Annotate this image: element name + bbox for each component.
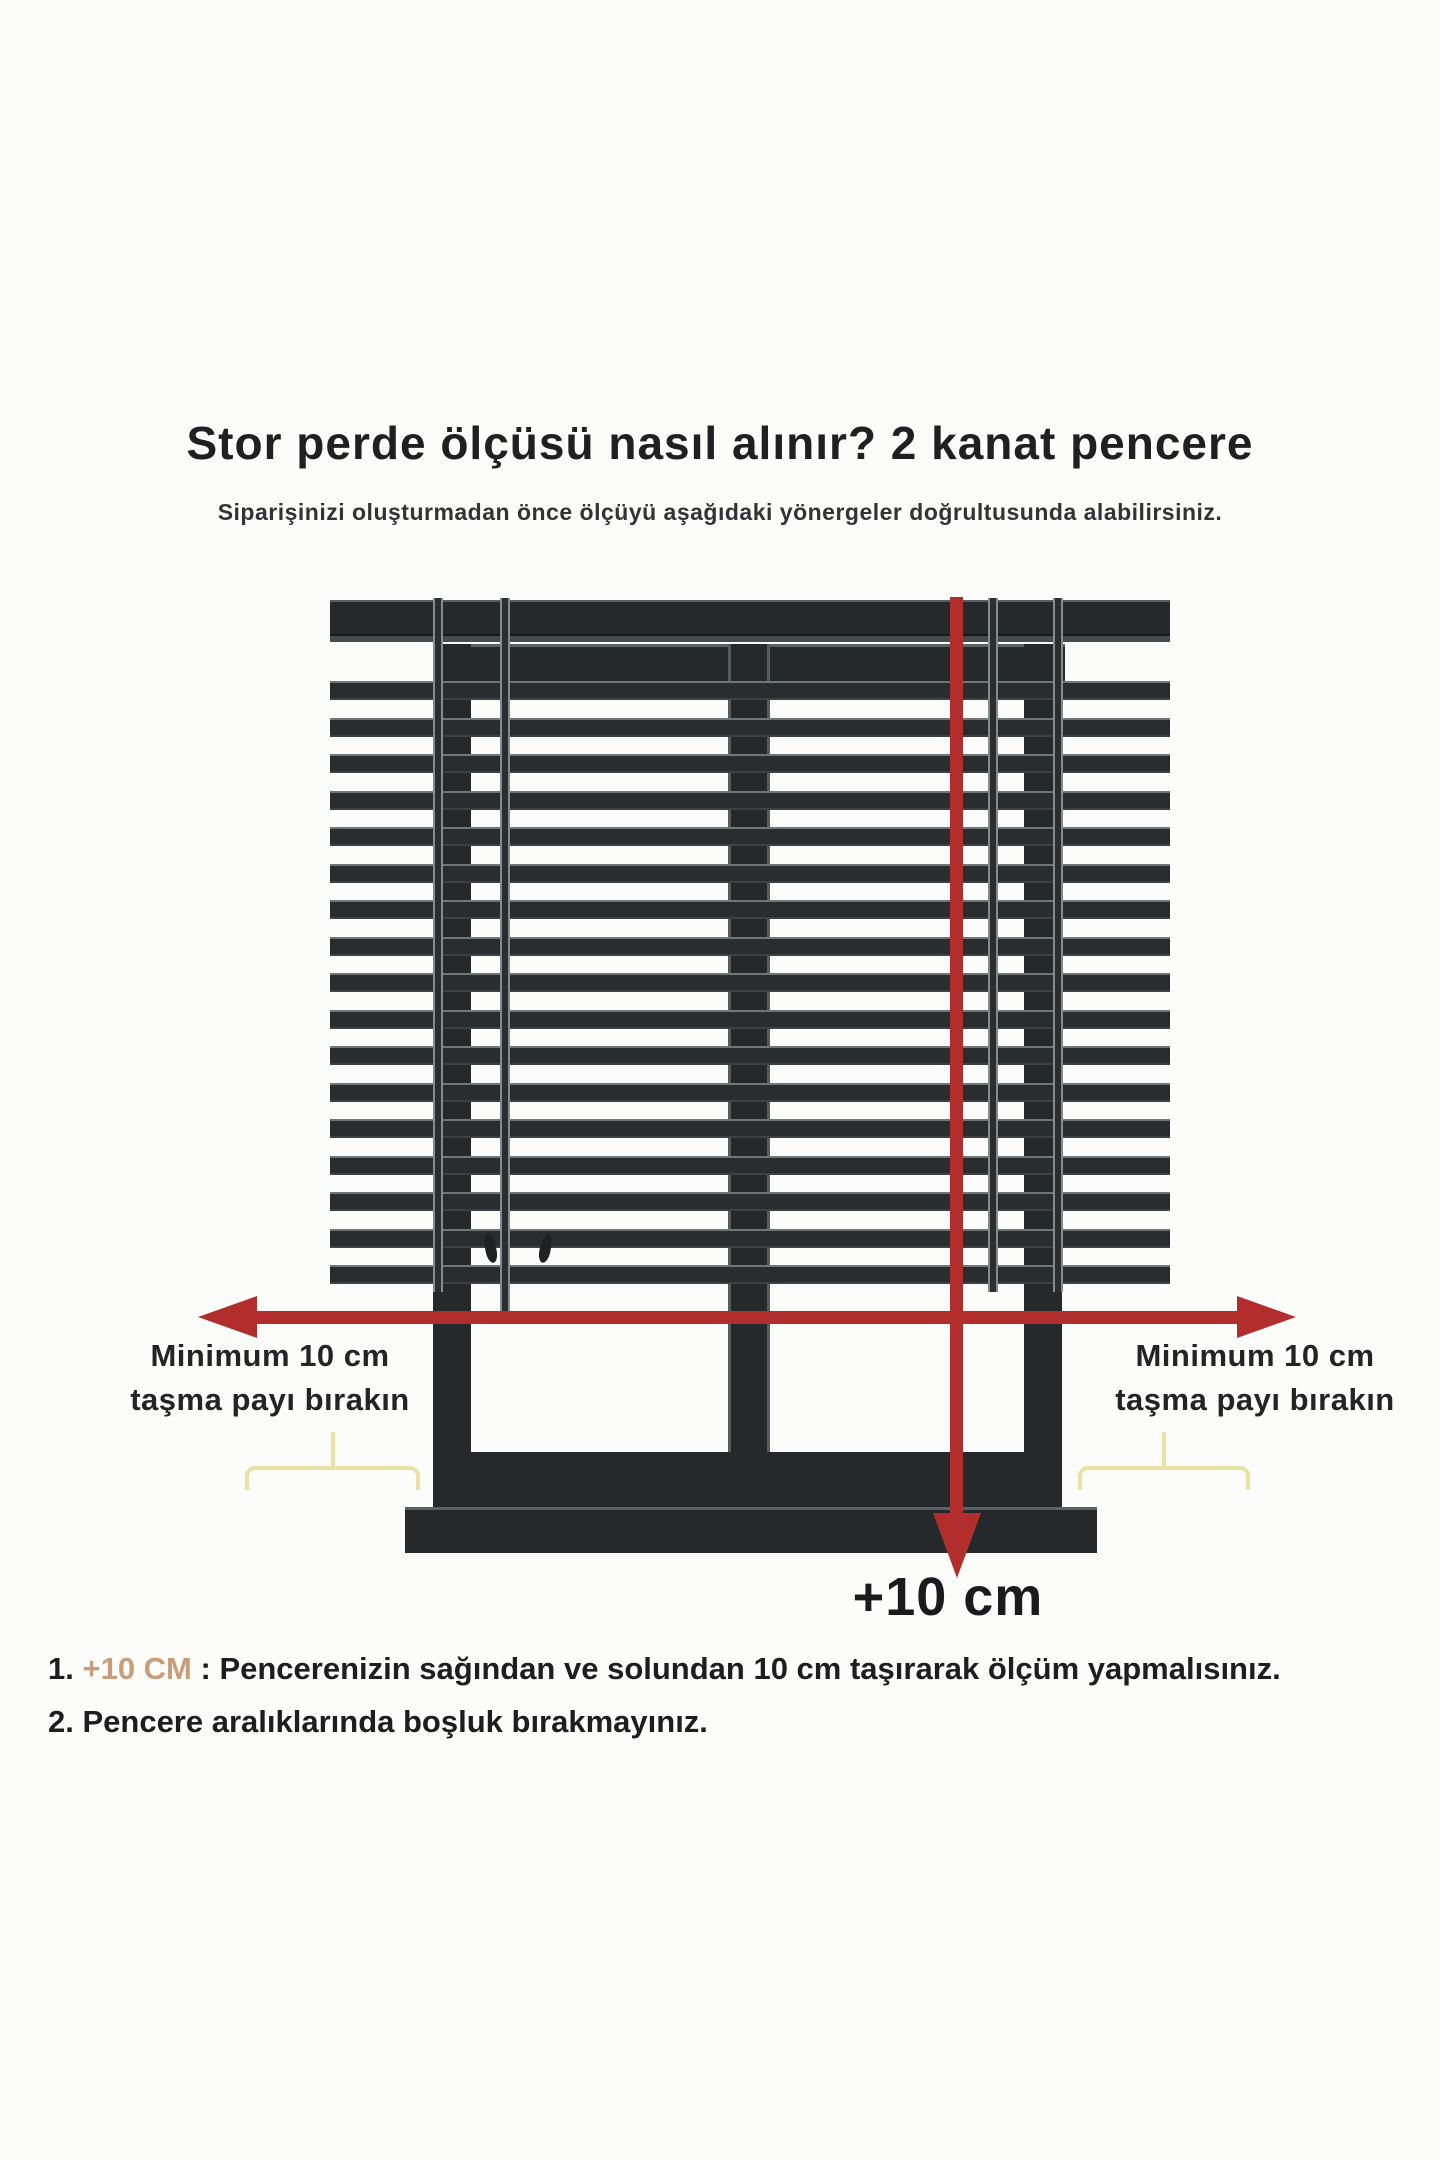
- blind-slat: [330, 1046, 1170, 1065]
- blind-slat: [330, 973, 1170, 992]
- left-overhang-label-line2: taşma payı bırakın: [80, 1378, 460, 1422]
- blind-slat: [330, 1010, 1170, 1029]
- window-bottom-rail: [433, 1452, 1062, 1507]
- width-arrow-right-head-icon: [1237, 1296, 1296, 1338]
- blind-cord: [433, 598, 443, 1292]
- blind-slat: [330, 681, 1170, 700]
- right-overhang-label: Minimum 10 cm taşma payı bırakın: [1065, 1334, 1440, 1422]
- bottom-arrow-label: +10 cm: [818, 1566, 1078, 1628]
- blind-cord: [1053, 598, 1063, 1292]
- right-brace-stem: [1162, 1432, 1166, 1468]
- blind-slat: [330, 1083, 1170, 1102]
- left-overhang-label: Minimum 10 cm taşma payı bırakın: [80, 1334, 460, 1422]
- blind-slat: [330, 718, 1170, 737]
- note-1-text: : Pencerenizin sağından ve solundan 10 c…: [192, 1651, 1281, 1686]
- left-brace-bow: [245, 1466, 420, 1490]
- blind-slat: [330, 1265, 1170, 1284]
- blind-slat: [330, 1156, 1170, 1175]
- note-2-number: 2.: [48, 1704, 74, 1739]
- blind-slat: [330, 1119, 1170, 1138]
- measurement-guide-page: Stor perde ölçüsü nasıl alınır? 2 kanat …: [0, 0, 1440, 2160]
- note-2-text: Pencere aralıklarında boşluk bırakmayını…: [74, 1704, 708, 1739]
- width-arrow-left-head-icon: [198, 1296, 257, 1338]
- window-center-mullion: [728, 644, 770, 1507]
- blind-slat: [330, 1192, 1170, 1211]
- blind-slat: [330, 937, 1170, 956]
- blind-cord: [988, 598, 998, 1292]
- blind-slat: [330, 791, 1170, 810]
- blind-slat: [330, 827, 1170, 846]
- blind-cord: [500, 598, 510, 1316]
- note-line-1: 1. +10 CM : Pencerenizin sağından ve sol…: [48, 1642, 1408, 1695]
- instruction-notes: 1. +10 CM : Pencerenizin sağından ve sol…: [48, 1642, 1408, 1748]
- blind-slat: [330, 754, 1170, 773]
- blind-slat: [330, 1229, 1170, 1248]
- right-overhang-label-line1: Minimum 10 cm: [1065, 1334, 1440, 1378]
- window-sill: [405, 1507, 1097, 1553]
- width-arrow-shaft: [252, 1311, 1240, 1324]
- note-line-2: 2. Pencere aralıklarında boşluk bırakmay…: [48, 1695, 1408, 1748]
- note-1-number: 1.: [48, 1651, 74, 1686]
- note-1-highlight: +10 CM: [74, 1651, 192, 1686]
- right-brace-bow: [1078, 1466, 1250, 1490]
- left-brace-stem: [331, 1432, 335, 1468]
- blind-slat: [330, 864, 1170, 883]
- left-overhang-label-line1: Minimum 10 cm: [80, 1334, 460, 1378]
- left-overhang-brace: [245, 1432, 420, 1492]
- right-overhang-brace: [1078, 1432, 1250, 1492]
- height-arrow-shaft: [950, 597, 963, 1515]
- blind-headrail: [330, 600, 1170, 642]
- blind-slat: [330, 900, 1170, 919]
- page-subtitle: Siparişinizi oluşturmadan önce ölçüyü aş…: [0, 499, 1440, 526]
- right-overhang-label-line2: taşma payı bırakın: [1065, 1378, 1440, 1422]
- page-title: Stor perde ölçüsü nasıl alınır? 2 kanat …: [0, 416, 1440, 470]
